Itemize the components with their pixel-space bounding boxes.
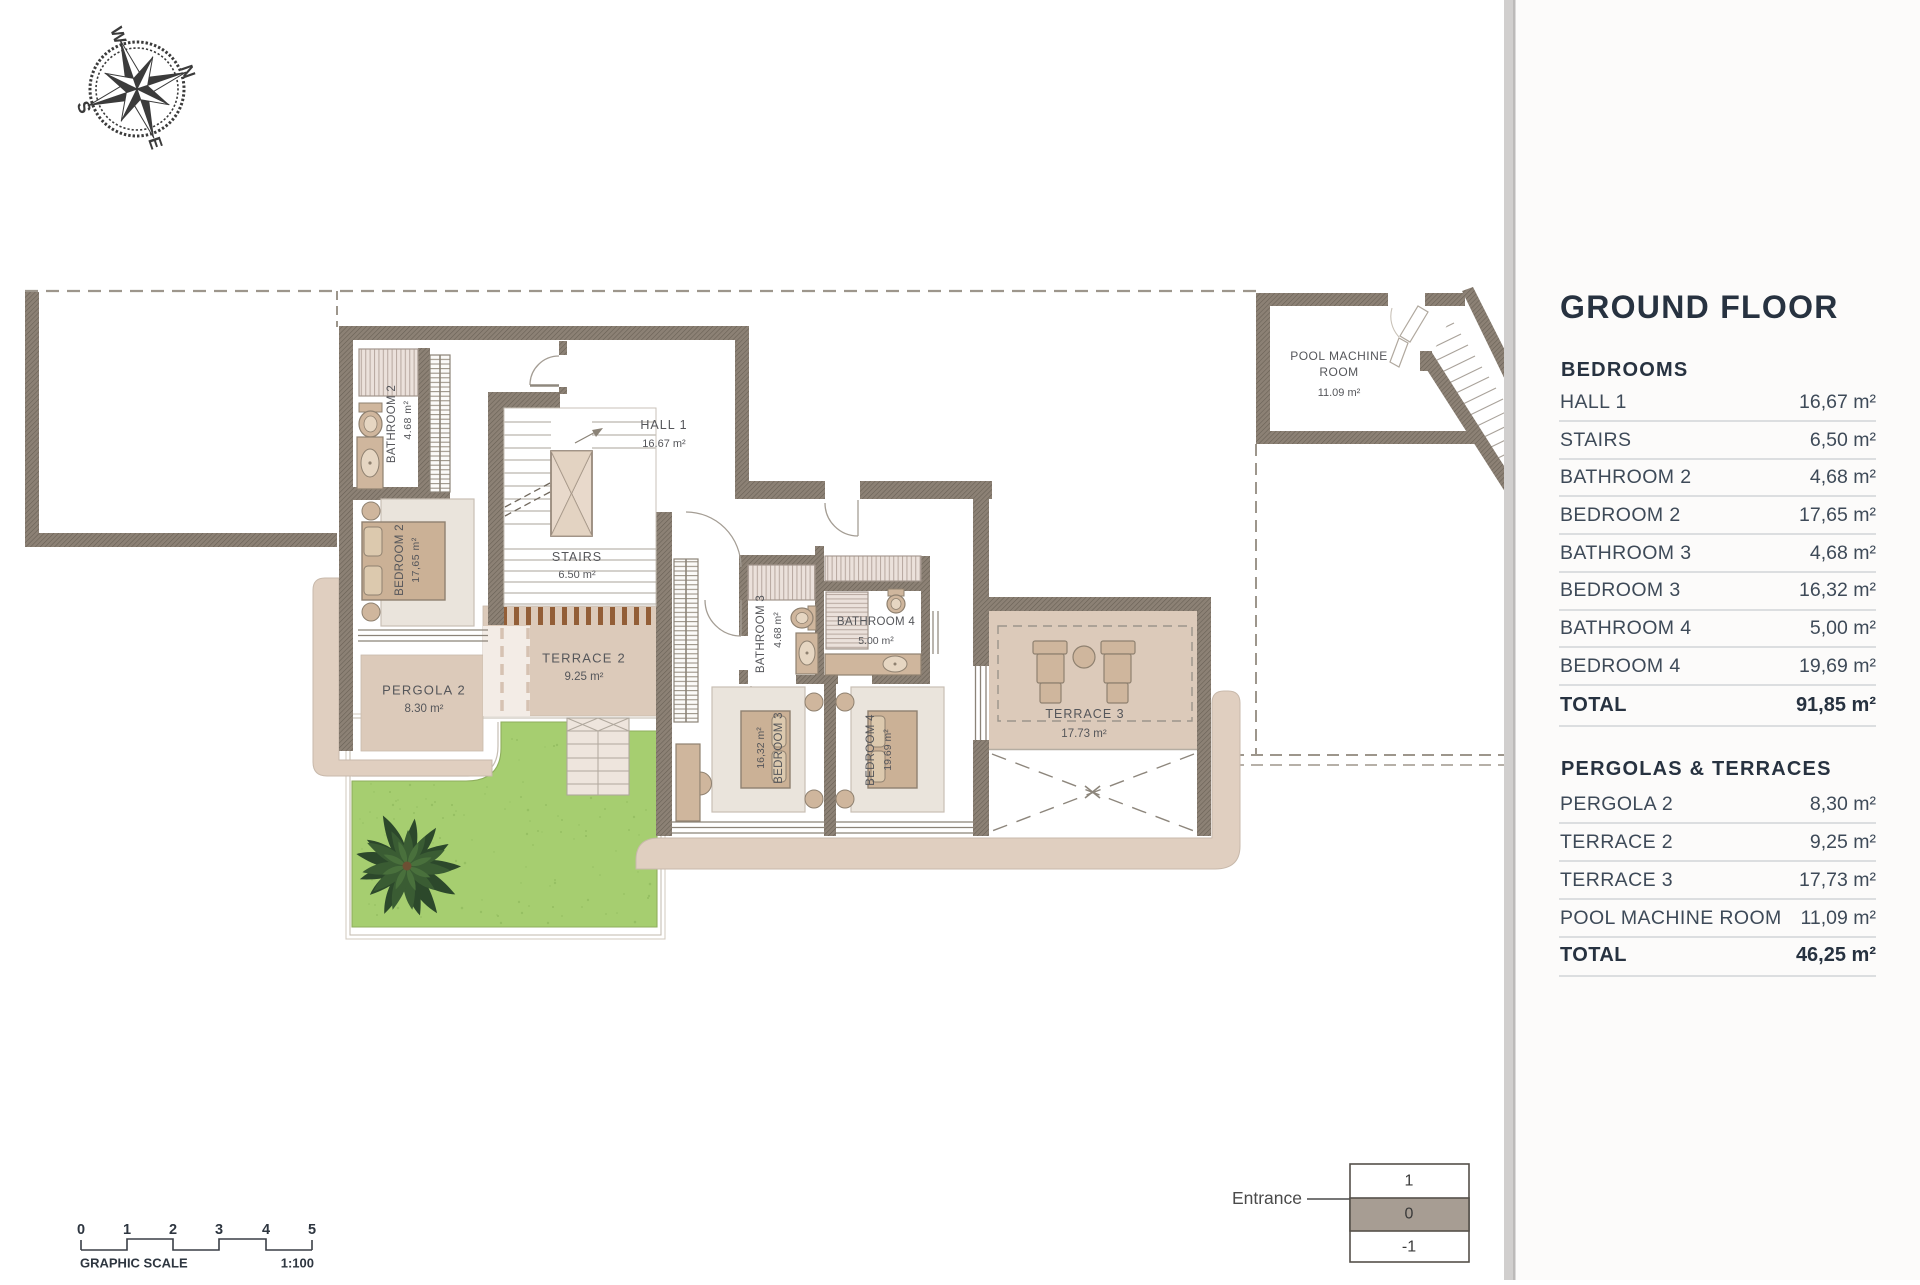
svg-text:9.25 m²: 9.25 m² xyxy=(565,671,604,683)
svg-text:BEDROOM 3: BEDROOM 3 xyxy=(1560,579,1681,601)
svg-text:5.00 m²: 5.00 m² xyxy=(858,635,894,647)
svg-text:11.09 m²: 11.09 m² xyxy=(1318,387,1361,399)
svg-text:STAIRS: STAIRS xyxy=(552,550,602,564)
svg-text:4: 4 xyxy=(262,1222,270,1238)
svg-text:8,30 m²: 8,30 m² xyxy=(1810,793,1877,815)
svg-text:1:100: 1:100 xyxy=(281,1256,314,1271)
svg-text:BATHROOM 2: BATHROOM 2 xyxy=(1560,466,1691,488)
svg-text:TERRACE 3: TERRACE 3 xyxy=(1560,869,1673,891)
svg-text:46,25 m²: 46,25 m² xyxy=(1796,944,1876,966)
svg-text:4.68 m²: 4.68 m² xyxy=(402,400,414,439)
svg-text:Entrance: Entrance xyxy=(1232,1188,1302,1208)
svg-text:16,67 m²: 16,67 m² xyxy=(1799,391,1876,413)
svg-text:POOL MACHINE ROOM: POOL MACHINE ROOM xyxy=(1560,907,1782,929)
svg-text:17,73 m²: 17,73 m² xyxy=(1799,869,1876,891)
svg-text:0: 0 xyxy=(1405,1206,1414,1223)
svg-text:TOTAL: TOTAL xyxy=(1560,944,1627,966)
svg-text:PERGOLA 2: PERGOLA 2 xyxy=(1560,793,1673,815)
svg-text:STAIRS: STAIRS xyxy=(1560,429,1631,451)
svg-text:19.69 m²: 19.69 m² xyxy=(882,729,894,771)
svg-text:91,85 m²: 91,85 m² xyxy=(1796,694,1876,716)
svg-text:17.73 m²: 17.73 m² xyxy=(1061,728,1107,740)
svg-text:BEDROOM 3: BEDROOM 3 xyxy=(773,712,785,784)
svg-text:TERRACE 2: TERRACE 2 xyxy=(542,651,626,666)
svg-text:9,25 m²: 9,25 m² xyxy=(1810,831,1877,853)
svg-text:4.68 m²: 4.68 m² xyxy=(772,612,784,648)
svg-text:BATHROOM 3: BATHROOM 3 xyxy=(1560,542,1691,564)
svg-text:BEDROOM 4: BEDROOM 4 xyxy=(1560,655,1681,677)
svg-text:17,65 m²: 17,65 m² xyxy=(1799,504,1876,526)
svg-text:HALL 1: HALL 1 xyxy=(1560,391,1627,413)
svg-text:POOL MACHINE: POOL MACHINE xyxy=(1290,349,1388,363)
svg-text:8.30 m²: 8.30 m² xyxy=(405,703,444,715)
svg-text:16,32 m²: 16,32 m² xyxy=(755,727,767,769)
svg-text:1: 1 xyxy=(123,1222,131,1238)
svg-text:-1: -1 xyxy=(1402,1239,1416,1256)
svg-text:BEDROOM 2: BEDROOM 2 xyxy=(1560,504,1681,526)
svg-text:1: 1 xyxy=(1405,1173,1414,1190)
svg-text:PERGOLAS & TERRACES: PERGOLAS & TERRACES xyxy=(1561,758,1832,780)
svg-text:TOTAL: TOTAL xyxy=(1560,694,1627,716)
svg-text:16,32 m²: 16,32 m² xyxy=(1799,579,1876,601)
svg-text:BATHROOM 4: BATHROOM 4 xyxy=(1560,617,1691,639)
svg-text:5: 5 xyxy=(308,1222,316,1238)
svg-text:16.67 m²: 16.67 m² xyxy=(642,438,686,450)
svg-text:ROOM: ROOM xyxy=(1319,365,1358,379)
svg-text:BATHROOM 2: BATHROOM 2 xyxy=(386,385,398,463)
svg-text:BATHROOM 3: BATHROOM 3 xyxy=(755,595,767,673)
svg-text:BEDROOMS: BEDROOMS xyxy=(1561,359,1688,381)
svg-text:19,69 m²: 19,69 m² xyxy=(1799,655,1876,677)
svg-text:HALL 1: HALL 1 xyxy=(640,418,687,432)
svg-text:17,65 m²: 17,65 m² xyxy=(410,537,422,582)
svg-text:GRAPHIC SCALE: GRAPHIC SCALE xyxy=(80,1256,188,1271)
svg-text:PERGOLA 2: PERGOLA 2 xyxy=(382,683,466,698)
svg-text:BEDROOM 2: BEDROOM 2 xyxy=(394,524,406,596)
svg-text:TERRACE 3: TERRACE 3 xyxy=(1045,707,1124,721)
svg-text:BATHROOM 4: BATHROOM 4 xyxy=(837,616,915,628)
svg-text:BEDROOM 4: BEDROOM 4 xyxy=(865,714,877,786)
svg-text:0: 0 xyxy=(77,1222,85,1238)
svg-text:6.50 m²: 6.50 m² xyxy=(558,569,596,581)
svg-text:4,68 m²: 4,68 m² xyxy=(1810,542,1877,564)
svg-text:6,50 m²: 6,50 m² xyxy=(1810,429,1877,451)
svg-text:4,68 m²: 4,68 m² xyxy=(1810,466,1877,488)
svg-text:5,00 m²: 5,00 m² xyxy=(1810,617,1877,639)
svg-text:2: 2 xyxy=(169,1222,177,1238)
svg-text:GROUND FLOOR: GROUND FLOOR xyxy=(1560,289,1839,325)
svg-text:TERRACE 2: TERRACE 2 xyxy=(1560,831,1673,853)
svg-text:3: 3 xyxy=(215,1222,223,1238)
svg-text:11,09 m²: 11,09 m² xyxy=(1800,907,1876,929)
